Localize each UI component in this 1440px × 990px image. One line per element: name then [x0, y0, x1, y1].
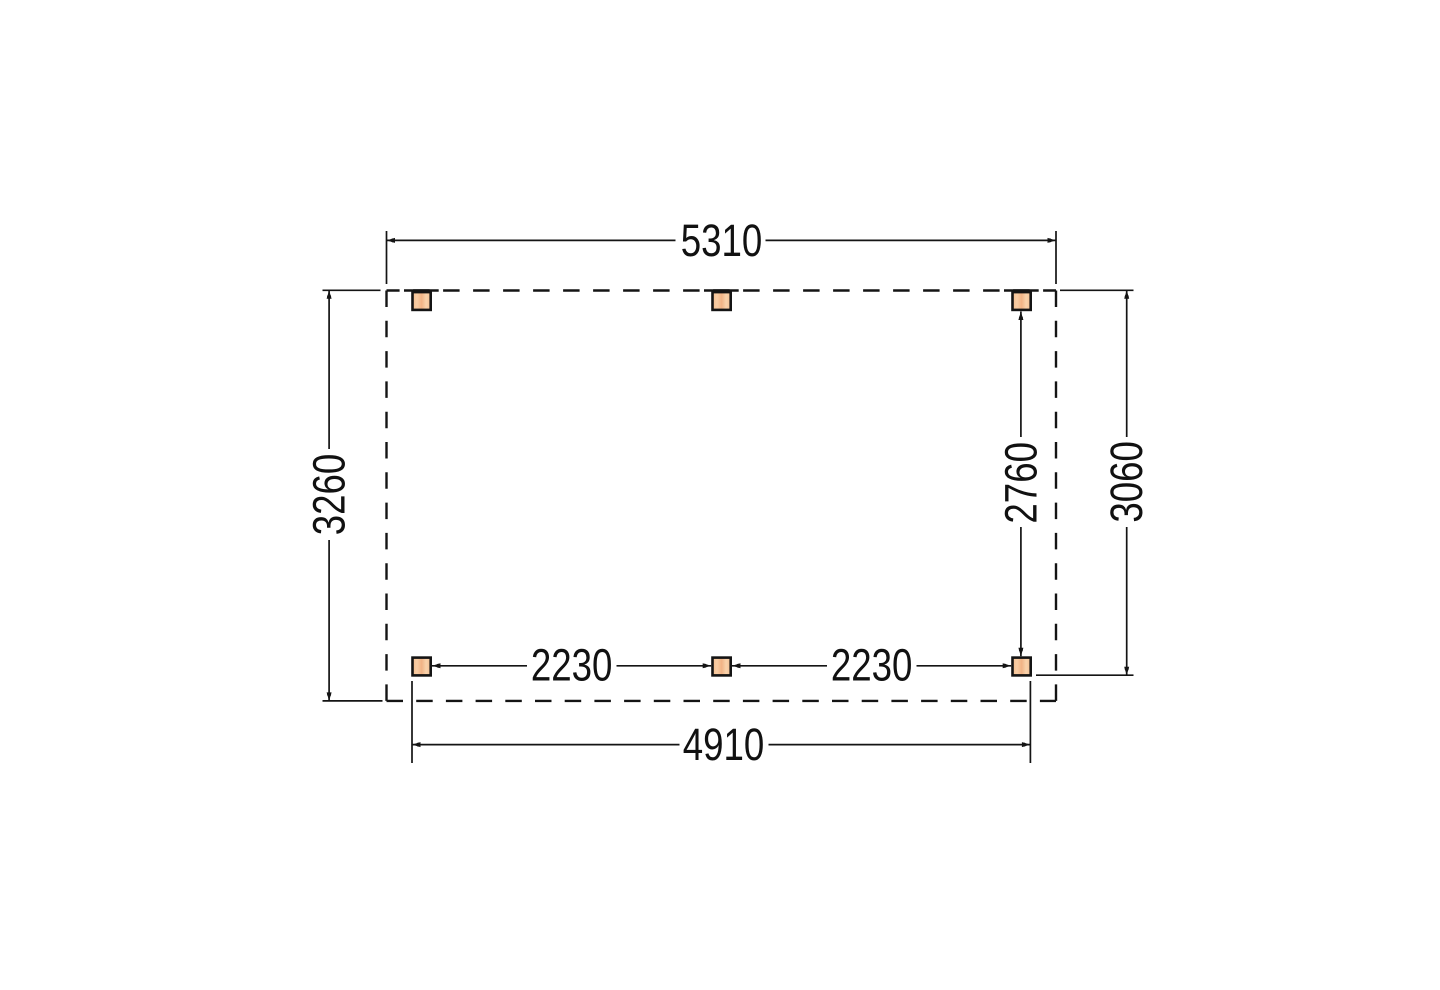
svg-text:2230: 2230	[531, 640, 613, 690]
svg-text:4910: 4910	[683, 720, 765, 770]
svg-text:2230: 2230	[831, 640, 913, 690]
svg-text:3060: 3060	[1102, 441, 1152, 523]
svg-text:5310: 5310	[681, 215, 763, 265]
svg-text:2760: 2760	[996, 442, 1046, 524]
svg-text:3260: 3260	[304, 454, 354, 536]
